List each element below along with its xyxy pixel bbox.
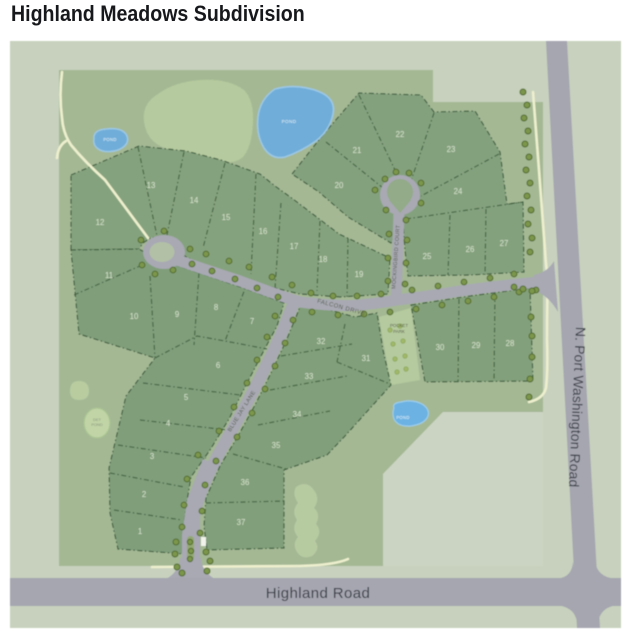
svg-text:21: 21 [353,146,362,155]
svg-text:4: 4 [166,419,171,428]
svg-text:23: 23 [447,145,456,154]
svg-text:PARK: PARK [393,329,405,334]
svg-text:33: 33 [305,372,314,381]
svg-text:6: 6 [216,361,220,370]
svg-text:29: 29 [472,341,481,350]
svg-text:30: 30 [436,343,445,352]
svg-text:2: 2 [142,490,146,499]
svg-text:Highland Road: Highland Road [266,585,370,602]
svg-text:POCKET: POCKET [390,323,408,328]
svg-text:5: 5 [184,393,189,402]
svg-text:POND: POND [103,137,116,142]
svg-text:1: 1 [138,527,142,536]
svg-text:3: 3 [150,452,154,461]
svg-text:11: 11 [105,271,113,280]
svg-text:22: 22 [396,130,405,139]
svg-text:17: 17 [290,242,299,251]
svg-text:10: 10 [130,312,139,321]
svg-text:12: 12 [96,218,105,227]
svg-text:15: 15 [222,213,231,222]
svg-text:POND: POND [396,415,409,420]
svg-text:32: 32 [317,337,326,346]
svg-text:35: 35 [272,441,281,450]
svg-text:27: 27 [500,239,509,248]
svg-text:26: 26 [466,245,475,254]
svg-text:36: 36 [241,478,250,487]
svg-text:18: 18 [319,255,328,264]
svg-text:7: 7 [250,317,254,326]
svg-text:28: 28 [506,339,515,348]
svg-text:POND: POND [91,422,103,427]
svg-text:13: 13 [147,181,156,190]
svg-text:9: 9 [175,310,179,319]
svg-text:16: 16 [259,227,268,236]
svg-text:20: 20 [335,181,344,190]
svg-text:14: 14 [190,196,199,205]
svg-text:POND: POND [282,119,297,124]
svg-text:24: 24 [454,187,463,196]
svg-text:19: 19 [355,270,364,279]
svg-text:37: 37 [237,518,246,527]
svg-text:8: 8 [214,303,218,312]
svg-text:34: 34 [293,410,302,419]
svg-text:31: 31 [362,354,371,363]
svg-text:25: 25 [423,252,432,261]
